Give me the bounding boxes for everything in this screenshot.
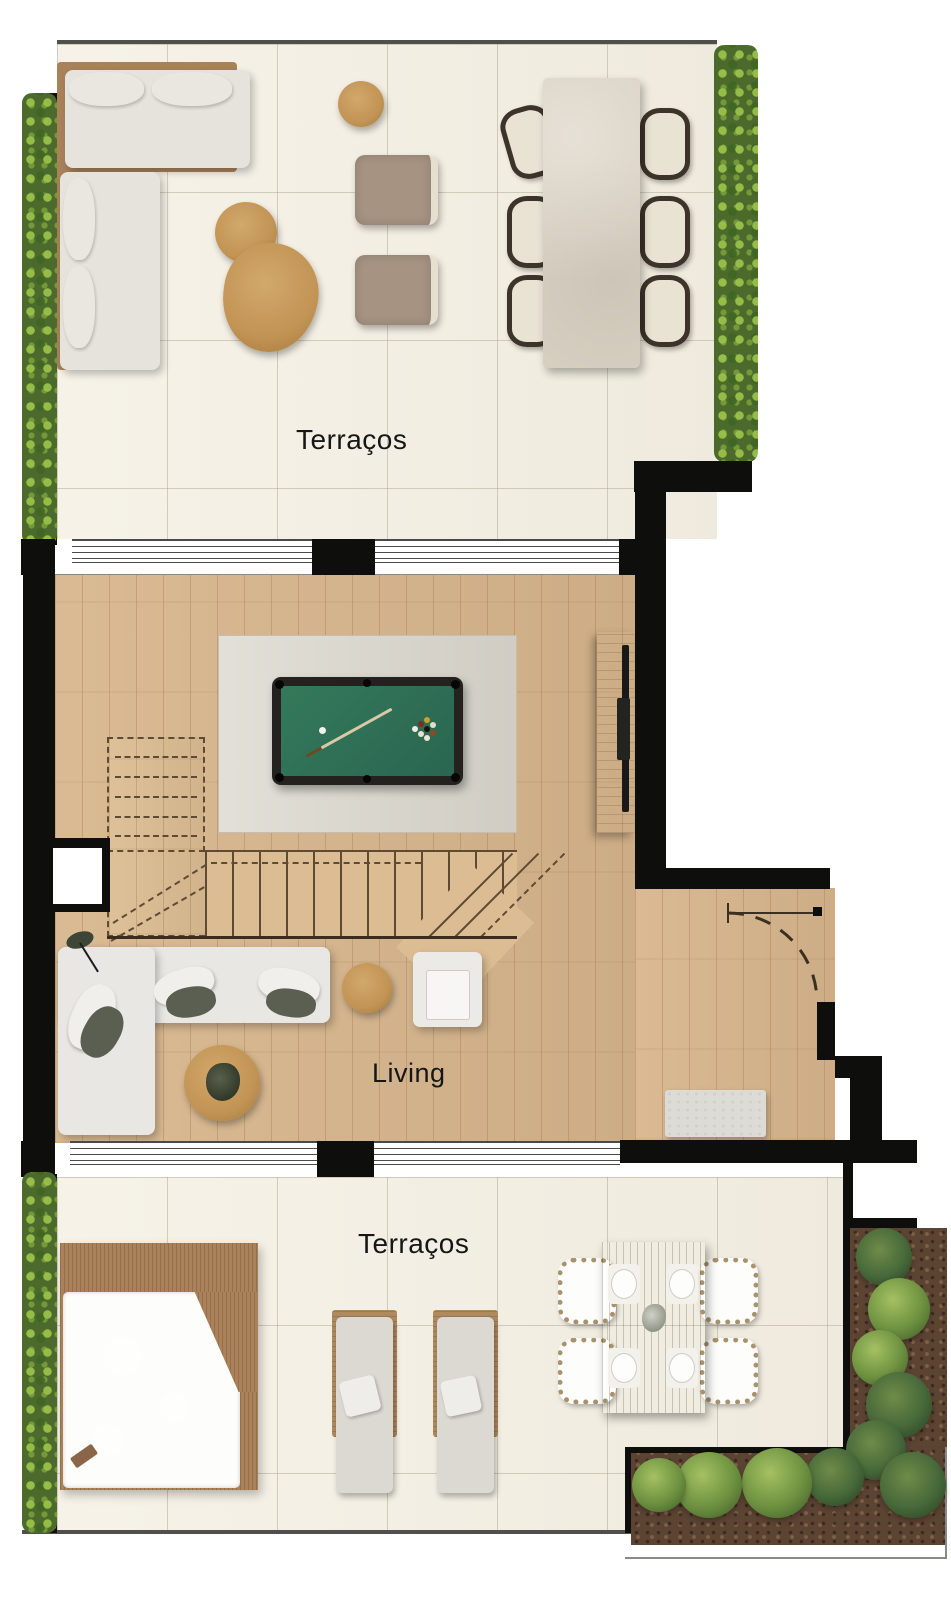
- living-armchair: [413, 952, 482, 1027]
- wall-step-top-right: [634, 461, 752, 492]
- lower-terrace-label: Terraços: [358, 1228, 469, 1260]
- planter-bush: [856, 1228, 912, 1286]
- table-decor: [206, 1063, 240, 1101]
- entry-door: [630, 885, 920, 1015]
- plate: [608, 1348, 640, 1388]
- round-coffee-table-living: [184, 1045, 260, 1121]
- wall-niche: [53, 848, 102, 904]
- plate: [666, 1348, 698, 1388]
- dining-chair: [640, 108, 690, 180]
- dining-chair: [640, 196, 690, 268]
- floor-plan: Terraços: [0, 0, 951, 1600]
- stair-lower-flight: [205, 850, 517, 937]
- outdoor-dining-chair: [700, 1338, 758, 1404]
- living-label: Living: [372, 1058, 446, 1089]
- floor-lamp: [64, 930, 104, 980]
- sliding-window: [70, 1141, 317, 1165]
- sofa-back-pillow: [69, 72, 144, 106]
- planter-bush: [880, 1452, 946, 1518]
- planter-outer-line: [945, 1447, 947, 1559]
- wall-above-door: [635, 868, 830, 889]
- sliding-window: [72, 539, 312, 563]
- round-side-table: [338, 81, 384, 127]
- jacuzzi-water: [77, 1306, 227, 1474]
- planter-bush: [632, 1458, 686, 1512]
- sofa-back-pillow: [63, 266, 95, 348]
- wall-stub: [843, 1218, 917, 1228]
- hedge-left-upper: [22, 93, 57, 545]
- wall-segment: [312, 539, 375, 575]
- plate: [666, 1264, 698, 1304]
- sofa-back-pillow: [152, 72, 232, 106]
- planter-bush: [742, 1448, 812, 1518]
- planter-edge: [625, 1447, 631, 1533]
- pool-pocket: [275, 680, 284, 689]
- wall-step: [835, 1056, 882, 1078]
- tv-mount: [617, 698, 630, 760]
- outdoor-dining-table: [602, 1242, 705, 1413]
- stone-dining-table: [543, 78, 640, 368]
- planter-outer-line: [625, 1557, 947, 1559]
- wall-right-upper: [635, 492, 666, 870]
- pool-pocket: [363, 679, 371, 687]
- table-centerpiece: [642, 1304, 666, 1332]
- wall-door-strike: [817, 1002, 835, 1060]
- entry-bench: [665, 1090, 766, 1137]
- stair-pit-edge: [107, 936, 517, 939]
- sun-lounger: [433, 1310, 498, 1493]
- hedge-left-lower: [22, 1172, 57, 1533]
- plate: [608, 1264, 640, 1304]
- stair-landing: [107, 852, 205, 937]
- round-side-table-living: [342, 963, 392, 1013]
- sliding-window: [374, 1141, 620, 1165]
- lounger-pillow: [440, 1375, 483, 1418]
- dining-chair: [640, 275, 690, 347]
- hedge-right-upper: [714, 45, 758, 462]
- wall-segment: [317, 1141, 374, 1177]
- planter-bush: [806, 1448, 864, 1506]
- wall-band-bottom-right: [620, 1140, 917, 1163]
- staircase: [107, 737, 517, 940]
- sofa-back-pillow: [63, 178, 95, 260]
- stair-upper-flight: [107, 737, 205, 852]
- outdoor-armchair: [355, 255, 438, 325]
- outdoor-dining-chair: [700, 1258, 758, 1324]
- sliding-window: [375, 539, 619, 563]
- pool-pocket: [451, 680, 460, 689]
- cue-ball: [319, 727, 326, 734]
- sun-lounger: [332, 1310, 397, 1493]
- wall-step: [850, 1078, 882, 1142]
- outdoor-armchair: [355, 155, 438, 225]
- upper-terrace-label: Terraços: [296, 424, 407, 456]
